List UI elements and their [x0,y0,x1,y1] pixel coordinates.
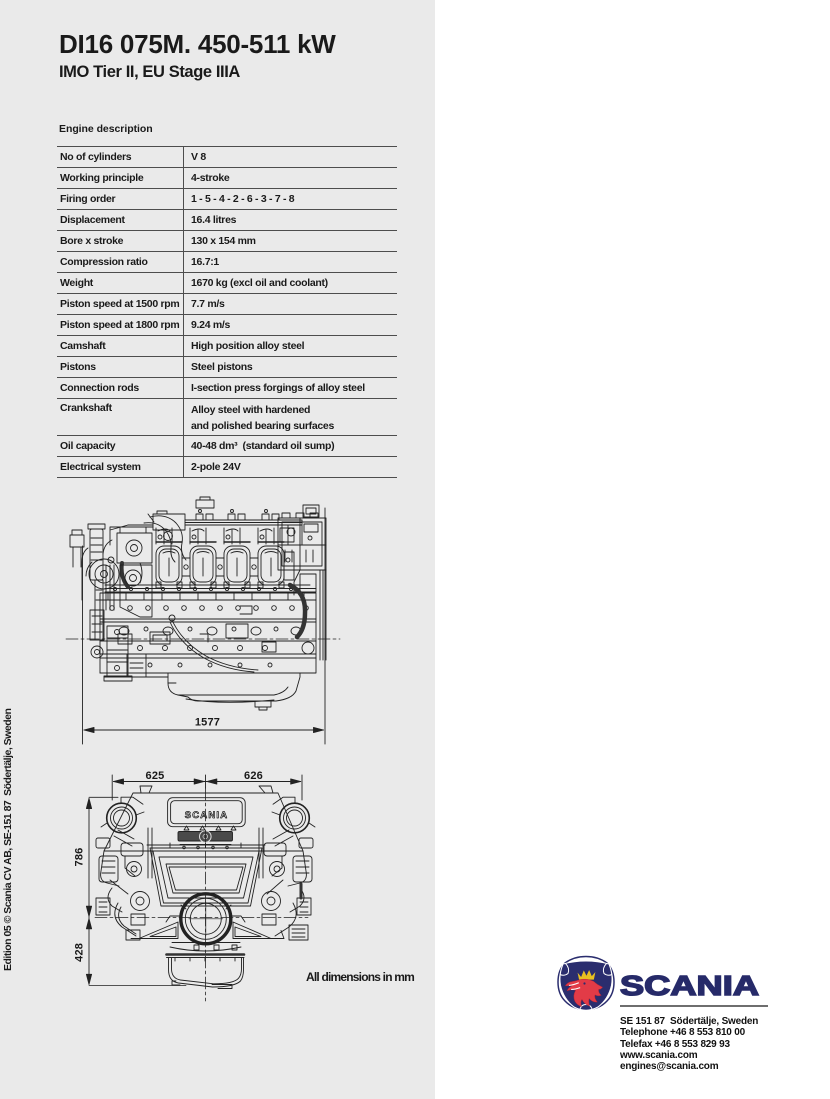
svg-text:786: 786 [74,848,86,867]
svg-text:428: 428 [74,943,86,962]
svg-text:SCANIA: SCANIA [185,810,229,821]
svg-text:1577: 1577 [195,717,220,729]
svg-text:SCANIA: SCANIA [620,970,759,1001]
svg-text:626: 626 [244,770,263,782]
svg-text:625: 625 [146,770,165,782]
